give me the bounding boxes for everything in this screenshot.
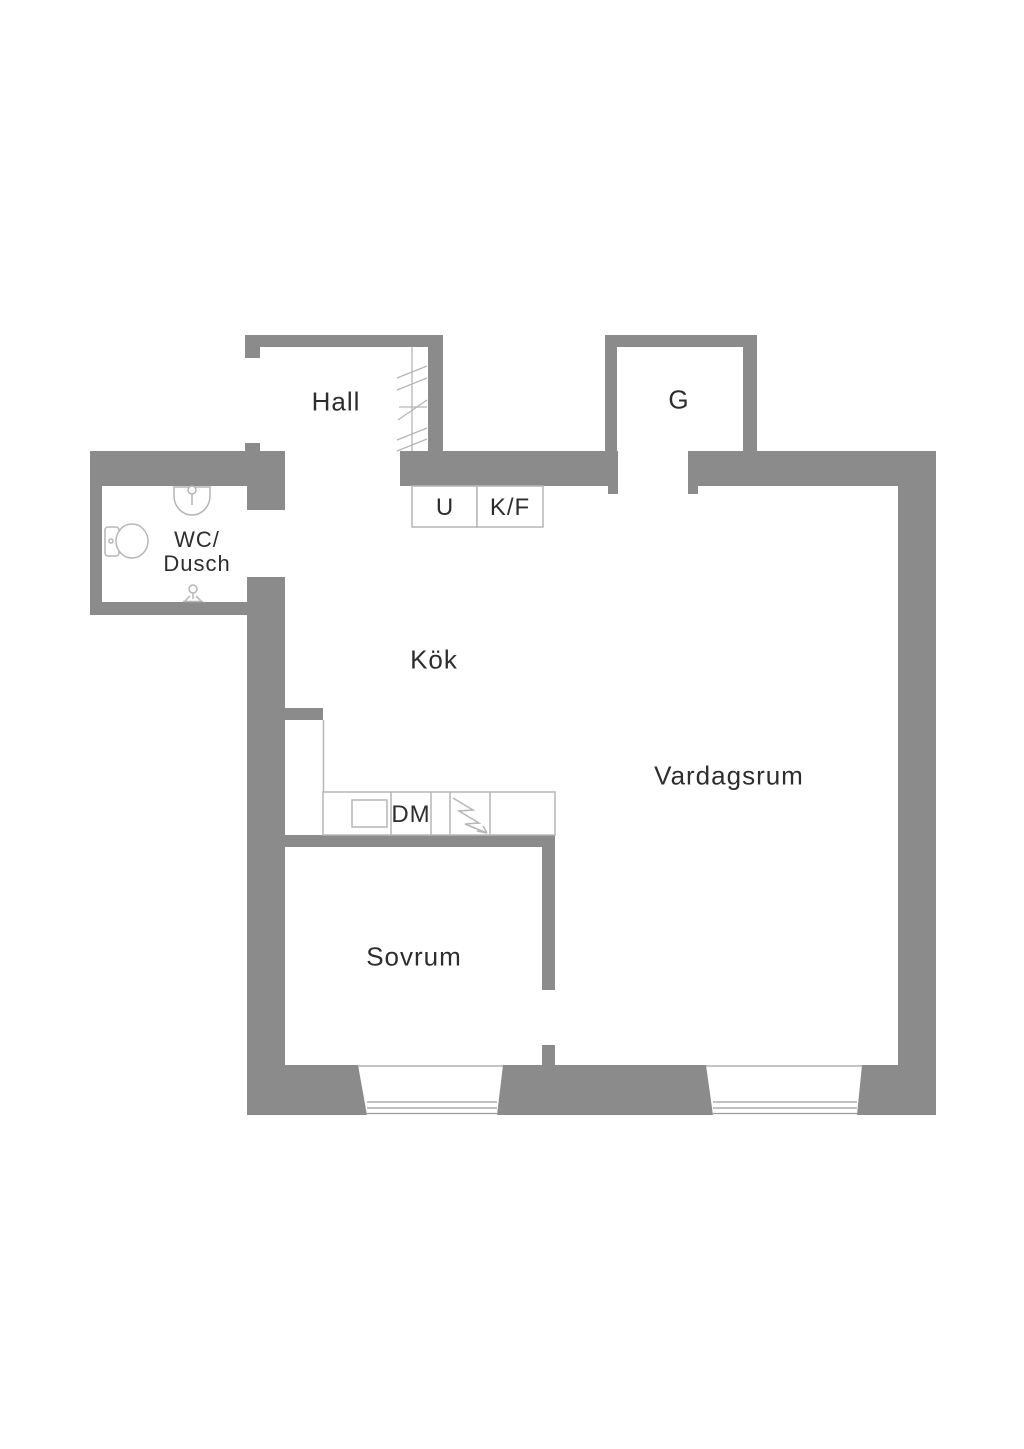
band-above-wc [90,451,285,486]
counter-outline [323,792,555,835]
closet-top-wall [605,335,757,347]
kitchen-label: Kök [410,645,458,676]
fridge-freezer-label: K/F [490,494,530,522]
closet-door-jamb-left [608,486,618,494]
closet-g-label: G [668,385,689,416]
hall-top-wall [245,335,443,347]
floor-plan-drawing [0,0,1024,1449]
dishwasher-label: DM [391,801,430,829]
wc-label-line1: WC/ [163,528,230,552]
right-exterior-wall [898,451,936,1115]
cabinet-u-label: U [436,494,454,522]
bedroom-door-stub [542,1045,555,1065]
hall-entry-jamb-top [245,347,260,358]
kitchen-stub-wall [285,708,323,720]
walls [90,335,936,1115]
band-center [400,451,618,486]
stove-icon [453,798,487,833]
bedroom-living-wall [542,847,555,990]
kitchen-counter [323,720,555,835]
wc-door-jamb-top [247,486,285,510]
bedroom-window [358,1065,503,1115]
bedroom-label: Sovrum [366,942,462,973]
hall-entry-jamb-bottom [245,443,260,452]
floor-plan: Hall G WC/ Dusch Kök Vardagsrum Sovrum U… [0,0,1024,1449]
bedroom-top-wall [247,835,555,847]
wc-left-wall [90,486,102,615]
closet-right-wall [743,347,757,452]
washbasin-icon [174,486,210,515]
wc-dusch-label: WC/ Dusch [163,528,230,576]
shower-icon [183,585,203,602]
wc-label-line2: Dusch [163,552,230,576]
hall-right-wall [428,347,443,452]
livingroom-window [706,1065,862,1115]
kitchen-sink-icon [352,800,387,827]
closet-door-jamb-right [688,486,698,494]
hall-wardrobe [397,347,427,451]
hall-label: Hall [312,387,361,418]
wc-bottom-wall [90,602,247,615]
livingroom-label: Vardagsrum [654,761,804,792]
closet-left-wall [605,347,617,452]
band-right [688,451,898,486]
toilet-icon [105,524,148,558]
